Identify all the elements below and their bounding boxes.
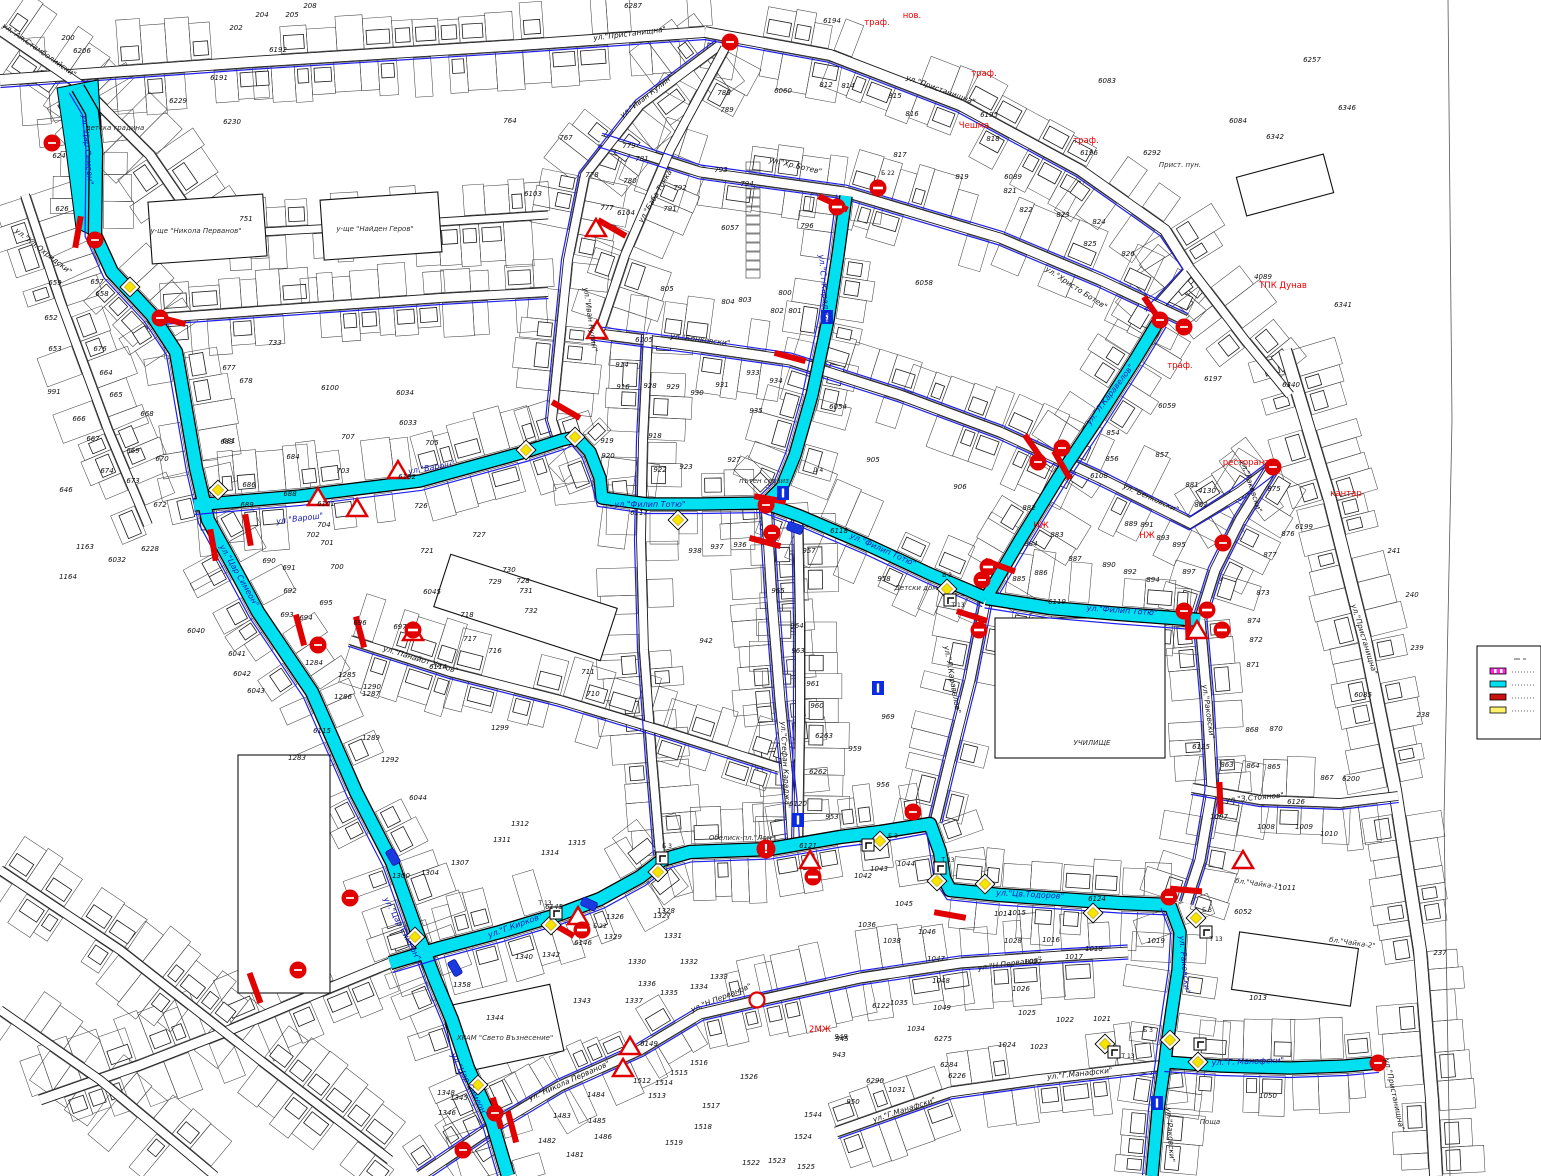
building-outline	[808, 799, 822, 811]
parcel-number: 6089	[1004, 173, 1022, 181]
parcel-number: 205	[285, 11, 299, 19]
hydrant-marker-label	[1180, 326, 1188, 328]
parcel-number: 1007	[1210, 813, 1228, 821]
parcel-number: 1015	[1008, 909, 1026, 917]
parcel-number: 705	[425, 439, 439, 447]
parcel-number: 658	[95, 290, 109, 298]
parcel-number: 6059	[1158, 402, 1176, 410]
parcel-number: 864	[1246, 762, 1259, 770]
building-outline	[1377, 640, 1394, 657]
hydrant-sign-glyph	[782, 489, 784, 498]
parcel-number: 1516	[690, 1059, 708, 1067]
building-outline	[1348, 1038, 1369, 1054]
parcel-number: 800	[778, 289, 792, 297]
parcel-number: 1336	[638, 980, 656, 988]
parcel-number: 1342	[542, 951, 560, 959]
parcel-number: 6032	[108, 556, 126, 564]
building-outline	[777, 857, 798, 874]
parcel-number: 894	[1146, 576, 1159, 584]
parcel-number: 670	[155, 455, 169, 463]
parcel-number: 6340	[1282, 381, 1300, 389]
place-label: УЧИЛИЩЕ	[1074, 739, 1111, 747]
parcel-number: 669	[126, 447, 140, 455]
parcel-number: 696	[353, 619, 367, 627]
place-label: пътен сервиз	[739, 477, 789, 485]
parcel-number: 1038	[883, 937, 901, 945]
parcel-number: 862	[1194, 501, 1208, 509]
parcel-number: 6114	[429, 663, 447, 671]
poi-red-label: траф.	[971, 69, 997, 79]
parcel-number: 6033	[399, 419, 417, 427]
building-outline	[621, 392, 636, 406]
building-outline	[858, 807, 871, 822]
parcel-number: 1299	[491, 724, 509, 732]
parcel-number: 814	[841, 82, 854, 90]
parcel-number: 793	[714, 166, 727, 174]
parcel-number: 6263	[815, 732, 833, 740]
parcel-number: 707	[341, 433, 355, 441]
building-outline	[415, 26, 436, 41]
parcel-number: 822	[1019, 206, 1033, 214]
building-outline	[442, 229, 458, 244]
parcel-number: 942	[699, 637, 713, 645]
parcel-number: 884	[1024, 540, 1037, 548]
building-outline	[993, 1060, 1006, 1075]
hydrant-marker-label	[909, 811, 917, 813]
parcel-number: 923	[679, 463, 692, 471]
parcel-number: 6262	[809, 768, 827, 776]
parcel-number: 1358	[453, 981, 471, 989]
parcel-number: 817	[893, 151, 907, 159]
building-outline	[1444, 1122, 1459, 1144]
large-building	[238, 755, 330, 993]
parcel-number: 956	[876, 781, 890, 789]
road-closure-bar-icon	[1216, 782, 1223, 814]
hydrant-marker-label	[726, 41, 734, 43]
building-outline	[847, 262, 863, 277]
parcel-number: 1517	[702, 1102, 720, 1110]
parcel-number: 870	[1269, 725, 1283, 733]
parcel-number: 821	[1003, 187, 1016, 195]
parcel-number: 1485	[588, 1117, 606, 1125]
parcel-number: 624	[52, 152, 65, 160]
parcel-number: 6043	[247, 687, 265, 695]
hydrant-marker-label	[1180, 610, 1188, 612]
parcel-number: 6042	[233, 670, 251, 678]
t13-sign-icon	[1194, 1038, 1206, 1050]
parcel-number: 695	[319, 599, 333, 607]
parcel-number: 1050	[1259, 1092, 1277, 1100]
parcel-number: 1021	[1093, 1015, 1111, 1023]
parcel-number: 802	[770, 307, 784, 315]
parcel-number: 871	[1246, 661, 1259, 669]
place-label: ХРАМ "Свето Възнесение"	[456, 1034, 553, 1042]
parcel-number: 6057	[721, 224, 739, 232]
parcel-number: 1513	[648, 1092, 666, 1100]
legend-swatch-gap	[1500, 669, 1503, 673]
hydrant-sign-glyph	[877, 684, 879, 693]
building-outline	[844, 280, 860, 296]
parcel-number: 819	[955, 173, 969, 181]
parcel-number: 1343	[573, 997, 591, 1005]
parcel-number: 694	[299, 614, 312, 622]
building-outline	[1214, 667, 1230, 692]
parcel-number: 1314	[541, 849, 559, 857]
parcel-number: 873	[1256, 589, 1269, 597]
no-entry-sign-bar	[1217, 629, 1227, 632]
street-name: ул."Филип Тотю"	[613, 500, 685, 509]
building-outline	[994, 969, 1009, 984]
city-cadastral-map[interactable]: !ул."Ал.Стамболийски"ул."Пристанищна"ул.…	[0, 0, 1541, 1176]
poi-red-label: траф.	[864, 18, 890, 28]
building-outline	[809, 655, 823, 670]
parcel-number: 1518	[694, 1123, 712, 1131]
building-outline	[1128, 1139, 1143, 1154]
parcel-number: 804	[721, 298, 734, 306]
parcel-number: 1482	[538, 1137, 556, 1145]
parcel-number: 1024	[998, 1041, 1016, 1049]
parcel-number: 710	[586, 690, 600, 698]
building-outline	[1147, 590, 1172, 606]
parcel-number: 1483	[553, 1112, 571, 1120]
parcel-number: 730	[502, 566, 516, 574]
building-outline	[233, 321, 252, 336]
parcel-number: 653	[48, 345, 61, 353]
parcel-number: 727	[472, 531, 486, 539]
parcel-number: 885	[1012, 575, 1026, 583]
parcel-number: 657	[90, 278, 104, 286]
parcel-number: 933	[746, 369, 759, 377]
parcel-number: 1013	[1249, 994, 1267, 1002]
parcel-number: 626	[55, 205, 69, 213]
parcel-number: 964	[790, 622, 803, 630]
parcel-number: 6060	[774, 87, 792, 95]
building-outline	[1374, 818, 1391, 840]
parcel-number: 931	[715, 381, 728, 389]
parcel-number: 721	[420, 547, 433, 555]
parcel-number: 1519	[665, 1139, 683, 1147]
parcel-number: 897	[1182, 568, 1196, 576]
parcel-number: 6052	[1234, 908, 1252, 916]
parcel-number: 6206	[73, 47, 91, 55]
parcel-number: 6119	[1048, 598, 1066, 606]
parcel-number: 892	[1123, 568, 1137, 576]
parcel-number: 791	[663, 205, 676, 213]
parcel-number: 690	[262, 557, 276, 565]
parcel-number: 6054	[829, 403, 847, 411]
parcel-number: 646	[59, 486, 73, 494]
sign-code-label: Д 4	[813, 467, 824, 474]
building-outline	[1014, 967, 1038, 983]
building-outline	[579, 238, 596, 255]
parcel-number: 688	[283, 490, 297, 498]
building-outline	[1035, 910, 1052, 925]
parcel-number: 1330	[628, 958, 646, 966]
building-outline	[842, 809, 854, 824]
sign-code-label: Б 22	[881, 170, 895, 177]
parcel-number: 732	[524, 607, 538, 615]
parcel-number: 868	[1245, 726, 1259, 734]
sign-code-label: Б 3	[888, 833, 898, 840]
legend-swatch-darkred	[1490, 694, 1506, 700]
parcel-number: 241	[1387, 547, 1400, 555]
poi-red-label: Чешма	[959, 121, 989, 131]
building-outline	[743, 509, 758, 520]
parcel-number: 963	[791, 647, 804, 655]
parcel-number: 1034	[907, 1025, 925, 1033]
building-outline	[785, 1002, 800, 1018]
place-label: детска градина	[85, 124, 144, 132]
sign-code-label: Т 13	[940, 857, 954, 864]
parcel-number: 1289	[362, 734, 380, 742]
hydrant-marker-label	[294, 969, 302, 971]
parcel-number: 6195	[980, 111, 998, 119]
building-outline	[1446, 1150, 1461, 1171]
parcel-number: 6192	[269, 46, 287, 54]
building-outline	[553, 51, 576, 66]
parcel-number: 887	[1068, 555, 1082, 563]
building-outline	[1127, 1158, 1142, 1170]
parcel-number: 1009	[1295, 823, 1313, 831]
parcel-number: 689	[240, 501, 254, 509]
parcel-number: 6197	[1204, 375, 1222, 383]
building-outline	[537, 322, 552, 337]
building-outline	[1407, 1106, 1422, 1129]
parcel-number: 905	[866, 456, 880, 464]
parcel-number: 4089	[1254, 273, 1272, 281]
parcel-number: 856	[1105, 455, 1119, 463]
parcel-number: 703	[336, 467, 349, 475]
place-label: Обелиск-пл."Лом"	[709, 834, 775, 842]
building-outline	[523, 19, 540, 34]
parcel-number: 1010	[1320, 830, 1338, 838]
building-outline	[767, 1006, 782, 1022]
parcel-number: 906	[953, 483, 967, 491]
parcel-number: 6257	[1303, 56, 1321, 64]
parcel-number: 6122	[872, 1002, 890, 1010]
parcel-number: 1017	[1065, 953, 1083, 961]
parcel-number: 815	[888, 92, 902, 100]
parcel-number: 6230	[223, 118, 241, 126]
parcel-number: 6118	[830, 527, 848, 535]
parcel-number: 965	[771, 587, 785, 595]
parcel-number: 1016	[1042, 936, 1060, 944]
parcel-number: 717	[463, 635, 477, 643]
building-outline	[803, 196, 814, 211]
parcel-number: 686	[242, 481, 256, 489]
parcel-number: 238	[1416, 711, 1430, 719]
hydrant-marker-label	[1374, 1062, 1382, 1064]
building-outline	[795, 24, 811, 40]
poi-red-label: нов.	[903, 11, 921, 21]
parcel-number: 1523	[768, 1157, 786, 1165]
parcel-number: 1515	[670, 1069, 688, 1077]
map-canvas[interactable]: !ул."Ал.Стамболийски"ул."Пристанищна"ул.…	[0, 0, 1541, 1176]
place-label: у-ще "Никола Перванов"	[150, 227, 242, 235]
parcel-number: 794	[740, 180, 753, 188]
building-outline	[441, 25, 457, 40]
parcel-number: 959	[848, 745, 862, 753]
parcel-number: 1526	[740, 1073, 758, 1081]
parcel-number: 877	[1263, 551, 1277, 559]
building-outline	[1199, 1076, 1212, 1091]
hydrant-marker-label	[459, 1149, 467, 1151]
parcel-number: 1163	[76, 543, 94, 551]
parcel-number: 1046	[918, 928, 936, 936]
building-outline	[462, 23, 483, 38]
poi-red-label: ТПК Дунав	[1258, 281, 1307, 291]
parcel-number: 700	[330, 563, 344, 571]
no-entry-sign-bar	[974, 629, 984, 632]
place-label: Поща	[1200, 1118, 1220, 1126]
parcel-number: 697	[393, 623, 407, 631]
parcel-number: 202	[229, 24, 243, 32]
hydrant-marker-label	[156, 317, 164, 319]
parcel-number: 6229	[169, 97, 187, 105]
parcel-number: 684	[286, 453, 299, 461]
parcel-number: 1326	[606, 913, 624, 921]
parcel-number: 6226	[948, 1072, 966, 1080]
parcel-number: 801	[788, 307, 801, 315]
building-outline	[163, 293, 187, 309]
parcel-number: 805	[660, 285, 674, 293]
building-outline	[757, 706, 772, 723]
parcel-number: 1344	[486, 1014, 504, 1022]
parcel-number: 818	[986, 135, 1000, 143]
parcel-number: 854	[1106, 429, 1119, 437]
building-outline	[956, 864, 982, 880]
parcel-number: 1042	[854, 872, 872, 880]
hydrant-marker-label	[1219, 542, 1227, 544]
building-outline	[1093, 1082, 1107, 1097]
parcel-number: 666	[72, 415, 86, 423]
building-outline	[1424, 903, 1440, 920]
building-outline	[1134, 1078, 1151, 1101]
no-entry-sign-bar	[1202, 609, 1212, 612]
parcel-number: 1008	[1257, 823, 1275, 831]
parcel-number: 1285	[338, 671, 356, 679]
parcel-number: 1286	[334, 693, 352, 701]
parcel-number: 957	[802, 547, 816, 555]
parcel-number: 711	[581, 668, 594, 676]
building-outline	[1388, 905, 1404, 920]
parcel-number: 6124	[1088, 895, 1106, 903]
parcel-number: 1031	[888, 1086, 906, 1094]
parcel-number: 6103	[524, 190, 542, 198]
building-outline	[534, 343, 550, 368]
t13-sign-icon	[656, 852, 668, 864]
parcel-number: 204	[255, 11, 268, 19]
parcel-number: 936	[733, 541, 747, 549]
parcel-number: 6083	[1098, 77, 1116, 85]
parcel-number: 950	[846, 1098, 860, 1106]
parcel-number: 777	[600, 204, 614, 212]
parcel-number: 6105	[635, 336, 653, 344]
building-outline	[1246, 1078, 1256, 1092]
building-outline	[1066, 964, 1091, 979]
hydrant-sign-glyph	[1156, 1099, 1158, 1108]
parcel-number: 1304	[421, 869, 439, 877]
road-surface	[798, 512, 800, 848]
parcel-number: 664	[99, 369, 112, 377]
building-outline	[1063, 1084, 1089, 1101]
poi-red-label: НЖ	[1139, 531, 1155, 541]
parcel-number: 652	[44, 314, 58, 322]
poi-red-label: ресторант	[1223, 458, 1270, 468]
hydrant-marker-label	[1269, 466, 1277, 468]
sign-code-label: Б 22	[593, 923, 607, 930]
parcel-number: 6346	[1338, 104, 1356, 112]
parcel-number: 702	[306, 531, 320, 539]
sign-code-label: Б 3	[1143, 1027, 1153, 1034]
parcel-number: 6191	[210, 74, 228, 82]
parcel-number: 6104	[617, 209, 635, 217]
parcel-number: 692	[283, 587, 297, 595]
parcel-number: 716	[488, 647, 502, 655]
parcel-number: 872	[1249, 636, 1263, 644]
parcel-number: 1348	[437, 1089, 455, 1097]
parcel-number: 922	[653, 466, 667, 474]
parcel-number: 1522	[742, 1159, 760, 1167]
warning-marker-glyph: !	[763, 842, 768, 856]
parcel-number: 6284	[940, 1061, 958, 1069]
building-outline	[1135, 1043, 1152, 1059]
parcel-number: 1019	[1147, 937, 1165, 945]
parcel-number: 1028	[1004, 937, 1022, 945]
parcel-number: 1315	[568, 839, 586, 847]
poi-red-label: 2МЖ	[809, 1025, 831, 1035]
building-outline	[1274, 1042, 1291, 1056]
building-outline	[653, 398, 668, 415]
parcel-number: 781	[635, 155, 648, 163]
building-outline	[482, 227, 502, 242]
parcel-number: 1514	[655, 1079, 673, 1087]
parcel-number: 691	[282, 564, 295, 572]
building-outline	[193, 41, 209, 56]
parcel-number: 796	[800, 222, 814, 230]
parcel-number: 6199	[1295, 523, 1313, 531]
parcel-number: 676	[93, 345, 107, 353]
place-label: Прист. пун.	[1159, 161, 1201, 169]
parcel-number: 930	[690, 389, 704, 397]
parcel-number: 875	[1267, 485, 1281, 493]
parcel-number: 929	[666, 383, 680, 391]
building-outline	[463, 228, 477, 243]
parcel-number: 1300	[392, 872, 410, 880]
parcel-number: 200	[61, 34, 75, 42]
parcel-number: 731	[519, 587, 532, 595]
parcel-number: 792	[673, 184, 687, 192]
parcel-number: 6290	[866, 1077, 884, 1085]
parcel-number: 1043	[870, 865, 888, 873]
hydrant-marker-label	[978, 579, 986, 581]
legend-panel[interactable]	[1477, 646, 1541, 739]
parcel-number: 667	[86, 435, 100, 443]
parcel-number: 943	[832, 1051, 845, 1059]
parcel-number: 1045	[895, 900, 913, 908]
parcel-number: 1035	[890, 999, 908, 1007]
parcel-number: 1026	[1012, 985, 1030, 993]
parcel-number: 1047	[927, 955, 945, 963]
building-outline	[705, 478, 722, 492]
parcel-number: 779	[622, 142, 636, 150]
parcel-number: 677	[222, 364, 236, 372]
parcel-number: 883	[1050, 531, 1063, 539]
building-outline	[1393, 939, 1410, 959]
sign-code-label: Т 13	[1208, 936, 1222, 943]
building-outline	[343, 313, 356, 328]
parcel-number: 1044	[897, 860, 915, 868]
